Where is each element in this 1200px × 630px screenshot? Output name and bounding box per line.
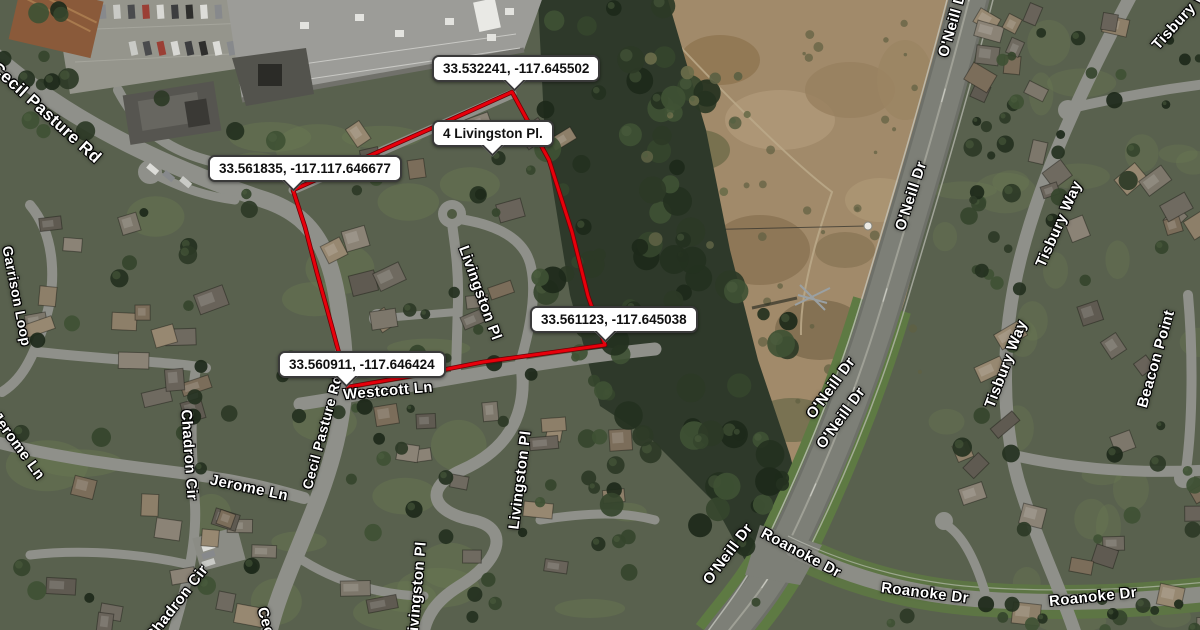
- satellite-map[interactable]: Cecil Pasture RdGarrison LoopJerome LnCh…: [0, 0, 1200, 630]
- parcel-boundary-outline: [293, 92, 605, 387]
- parcel-boundary-layer: [0, 0, 1200, 630]
- parcel-boundary-outline-shadow: [293, 92, 605, 387]
